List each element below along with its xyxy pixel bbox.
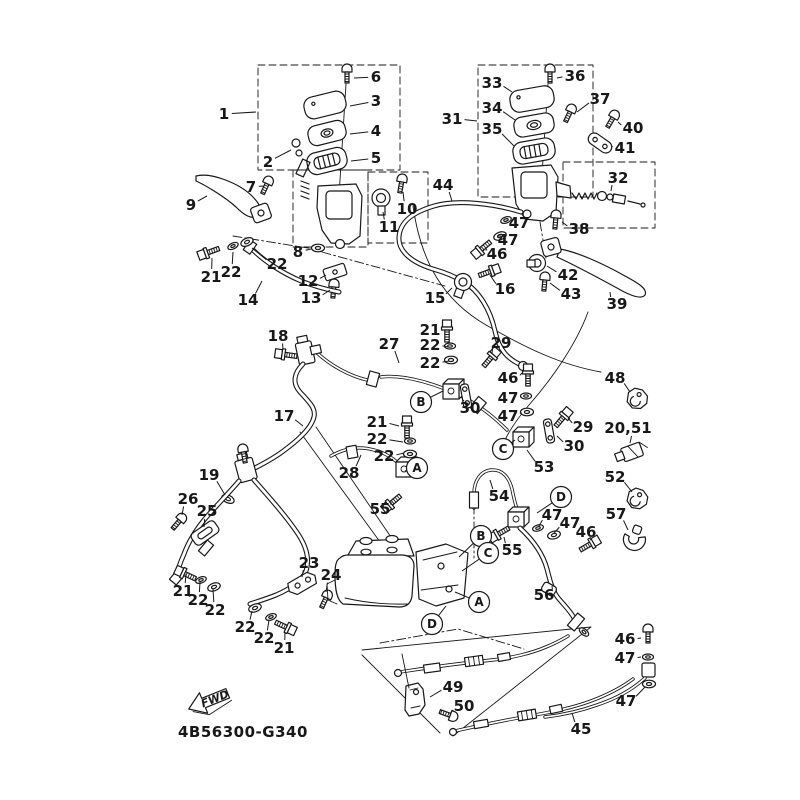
callout-35: 35 bbox=[482, 120, 503, 138]
callout-22: 22 bbox=[235, 618, 256, 636]
grommet-47-bottom bbox=[643, 680, 656, 688]
callout-22: 22 bbox=[374, 447, 395, 465]
callout-28: 28 bbox=[339, 464, 360, 482]
callout-22: 22 bbox=[420, 354, 441, 372]
ref-letter-B: B bbox=[416, 395, 425, 409]
cable-upper-end bbox=[395, 670, 402, 677]
cable-ferrule bbox=[497, 653, 510, 662]
callout-leader-25 bbox=[204, 519, 205, 527]
callout-49: 49 bbox=[443, 678, 464, 696]
callout-43: 43 bbox=[561, 285, 582, 303]
callout-26: 26 bbox=[178, 490, 199, 508]
callout-29: 29 bbox=[573, 418, 594, 436]
callout-38: 38 bbox=[569, 220, 590, 238]
callout-23: 23 bbox=[299, 554, 320, 572]
diagram-code: 4B56300-G340 bbox=[178, 723, 308, 741]
callout-1: 1 bbox=[219, 105, 229, 123]
callout-45: 45 bbox=[571, 720, 592, 738]
callout-8: 8 bbox=[293, 243, 303, 261]
callout-47: 47 bbox=[498, 389, 519, 407]
callout-37: 37 bbox=[590, 90, 611, 108]
callout-21: 21 bbox=[274, 639, 295, 657]
ref-letter-C: C bbox=[499, 442, 508, 456]
ref-letter-C: C bbox=[484, 546, 493, 560]
callout-2: 2 bbox=[263, 153, 273, 171]
callout-22: 22 bbox=[267, 255, 288, 273]
callout-leader-47 bbox=[520, 396, 521, 397]
callout-36: 36 bbox=[565, 67, 586, 85]
callout-46: 46 bbox=[487, 245, 508, 263]
callout-31: 31 bbox=[442, 110, 463, 128]
callout-13: 13 bbox=[301, 289, 322, 307]
callout-44: 44 bbox=[433, 176, 454, 194]
callout-50: 50 bbox=[454, 697, 475, 715]
callout-12: 12 bbox=[298, 272, 319, 290]
cable-adjuster-1 bbox=[424, 663, 441, 673]
callout-leader-6 bbox=[354, 77, 368, 78]
callout-leader-47 bbox=[638, 657, 641, 658]
washer-47-bottom bbox=[643, 654, 654, 660]
callout-39: 39 bbox=[607, 295, 628, 313]
callout-55: 55 bbox=[502, 541, 523, 559]
ref-letter-B: B bbox=[476, 529, 485, 543]
callout-46: 46 bbox=[615, 630, 636, 648]
callout-22: 22 bbox=[367, 430, 388, 448]
callout-27: 27 bbox=[379, 335, 400, 353]
ref-letter-D: D bbox=[556, 490, 566, 504]
joint-block-D bbox=[508, 507, 529, 527]
joint-block-53 bbox=[513, 427, 534, 447]
callout-47: 47 bbox=[616, 692, 637, 710]
callout-6: 6 bbox=[371, 68, 381, 86]
callout-19: 19 bbox=[199, 466, 220, 484]
cable-45-adjuster bbox=[517, 709, 536, 721]
callout-55: 55 bbox=[370, 500, 391, 518]
callout-33: 33 bbox=[482, 74, 503, 92]
callout-41: 41 bbox=[615, 139, 636, 157]
banjo-boss bbox=[336, 240, 345, 249]
callout-4: 4 bbox=[371, 122, 381, 140]
washer-22-mid bbox=[445, 343, 456, 349]
washer-47-mid bbox=[521, 393, 532, 399]
callout-47: 47 bbox=[615, 649, 636, 667]
callout-14: 14 bbox=[238, 291, 259, 309]
callout-24: 24 bbox=[321, 566, 342, 584]
callout-54: 54 bbox=[489, 487, 510, 505]
callout-52: 52 bbox=[605, 468, 626, 486]
callout-56: 56 bbox=[534, 586, 555, 604]
callout-10: 10 bbox=[397, 200, 418, 218]
callout-53: 53 bbox=[534, 458, 555, 476]
cable-adjuster-2 bbox=[464, 655, 483, 666]
callout-47: 47 bbox=[498, 407, 519, 425]
callout-3: 3 bbox=[371, 92, 381, 110]
callout-21: 21 bbox=[201, 268, 222, 286]
callout-30: 30 bbox=[460, 399, 481, 417]
callout-9: 9 bbox=[186, 196, 196, 214]
washer-22-A bbox=[405, 438, 416, 444]
ref-letter-D: D bbox=[427, 617, 437, 631]
abs-bracket bbox=[416, 544, 468, 606]
callout-57: 57 bbox=[606, 505, 627, 523]
callout-16: 16 bbox=[495, 280, 516, 298]
callout-30: 30 bbox=[564, 437, 585, 455]
grommet-22-mid bbox=[445, 356, 458, 364]
grommet-8 bbox=[312, 244, 325, 252]
callout-48: 48 bbox=[605, 369, 626, 387]
callout-18: 18 bbox=[268, 327, 289, 345]
callout-22: 22 bbox=[254, 629, 275, 647]
callout-22: 22 bbox=[205, 601, 226, 619]
grommet-47-mid bbox=[521, 408, 534, 416]
callout-46: 46 bbox=[576, 523, 597, 541]
pipe-28-flare-nut bbox=[346, 445, 358, 459]
callout-34: 34 bbox=[482, 99, 503, 117]
cable-45-end bbox=[450, 729, 457, 736]
callout-32: 32 bbox=[608, 169, 629, 187]
parts-diagram: FWD BCADBCAD 163452791011821222214121333… bbox=[0, 0, 800, 800]
ref-letter-A: A bbox=[412, 461, 422, 475]
callout-17: 17 bbox=[274, 407, 295, 425]
pipe-54-barrel bbox=[470, 492, 479, 508]
cable-joint-barrel bbox=[642, 663, 655, 677]
callout-25: 25 bbox=[197, 502, 218, 520]
callout-leader-46 bbox=[638, 638, 641, 639]
callout-22: 22 bbox=[420, 336, 441, 354]
callout-15: 15 bbox=[425, 289, 446, 307]
callout-7: 7 bbox=[246, 178, 256, 196]
callout-47: 47 bbox=[509, 214, 530, 232]
callout-46: 46 bbox=[498, 369, 519, 387]
callout-5: 5 bbox=[371, 149, 381, 167]
grommet-22-A bbox=[404, 450, 417, 458]
ref-letter-A: A bbox=[474, 595, 484, 609]
callout-22: 22 bbox=[221, 263, 242, 281]
callout-11: 11 bbox=[379, 218, 400, 236]
callout-21: 21 bbox=[367, 413, 388, 431]
callout-leader-41 bbox=[612, 146, 613, 147]
callout-29: 29 bbox=[491, 334, 512, 352]
callout-20,51: 20,51 bbox=[604, 419, 651, 437]
page-background bbox=[0, 0, 800, 800]
callout-42: 42 bbox=[558, 266, 579, 284]
callout-40: 40 bbox=[623, 119, 644, 137]
